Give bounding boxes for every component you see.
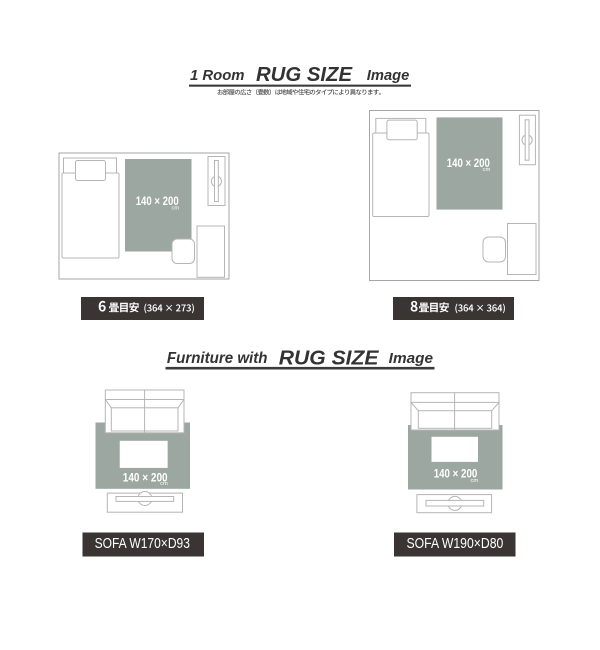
svg-text:Image: Image: [367, 67, 410, 84]
svg-text:cm: cm: [470, 478, 478, 484]
svg-text:cm: cm: [160, 481, 168, 487]
svg-text:cm: cm: [483, 167, 491, 173]
svg-text:RUG SIZE: RUG SIZE: [256, 64, 353, 86]
svg-text:1 Room: 1 Room: [190, 67, 245, 84]
svg-text:Image: Image: [389, 350, 433, 367]
svg-text:Furniture with: Furniture with: [167, 350, 268, 367]
svg-text:cm: cm: [171, 205, 179, 211]
svg-text:SOFA W170×D93: SOFA W170×D93: [95, 536, 190, 552]
svg-text:SOFA W190×D80: SOFA W190×D80: [407, 536, 504, 552]
svg-text:RUG SIZE: RUG SIZE: [279, 347, 379, 369]
